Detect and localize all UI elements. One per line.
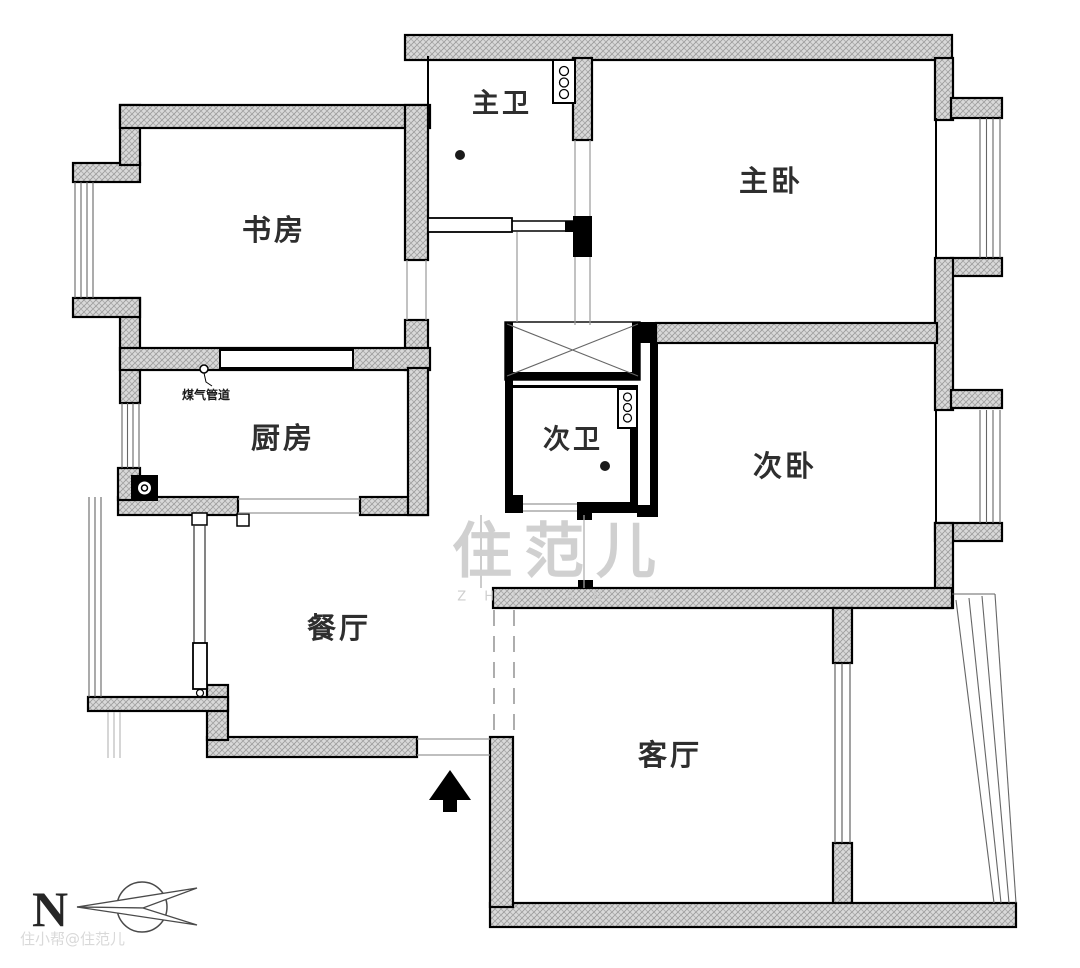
wall-secondbath-corner (505, 495, 523, 513)
wall-secondbed-left (650, 343, 658, 513)
kitchen-opening-frame (237, 514, 249, 526)
wall-kitchen-right (408, 368, 428, 515)
wall-center-upper (405, 105, 428, 260)
room-label-second-bedroom: 次卧 (753, 449, 817, 483)
shaft-bottom-border (505, 372, 640, 380)
room-label-living: 客厅 (638, 738, 702, 772)
sidebalcony-partition-frame (192, 513, 207, 525)
watermark-letters: Z H U F A N E R (457, 590, 662, 605)
wall-dining-bottom (207, 737, 417, 757)
floor-plan: 主卫 主卧 书房 厨房 次卫 次卧 餐厅 客厅 煤气管道 住范儿 Z H U F… (0, 0, 1080, 968)
wall-dining-corner (207, 685, 228, 740)
wall-secondbath-top (505, 385, 638, 388)
wall-bottom (490, 903, 1016, 927)
compass-north-label: N (32, 881, 68, 937)
radiator-master-bath (553, 60, 575, 103)
background (0, 0, 1080, 968)
door-study-kitchen-pass (220, 350, 353, 368)
floor-drain-second-bath (600, 461, 610, 471)
gas-pipe-label: 煤气管道 (182, 387, 230, 402)
watermark-center: 住范儿 (452, 517, 668, 587)
gas-meter-kitchen (131, 475, 158, 501)
floor-drain-master-bath (455, 150, 465, 160)
wall-secondbath-left (505, 380, 513, 513)
room-label-kitchen: 厨房 (251, 421, 315, 455)
wall-bay2-stub-top (951, 390, 1002, 408)
wall-sidebalcony-bottom (88, 697, 228, 711)
floor-plan-canvas: 主卫 主卧 书房 厨房 次卫 次卧 餐厅 客厅 煤气管道 住范儿 Z H U F… (0, 0, 1080, 968)
wall-living-left (490, 737, 513, 907)
wall-balcony-divider-top (833, 608, 852, 663)
door-masterbath (428, 218, 512, 232)
wall-secondbed-jog (637, 505, 658, 517)
wall-studybay-stub-bottom (73, 298, 140, 317)
door-sidebalcony (193, 643, 207, 689)
room-label-dining: 餐厅 (307, 611, 371, 645)
shaft-left-border (505, 322, 513, 380)
room-label-second-bath: 次卫 (543, 425, 603, 456)
room-label-master-bedroom: 主卧 (739, 164, 803, 198)
wall-top (405, 35, 952, 60)
wall-balcony-divider-bottom (833, 843, 852, 905)
wall-secondbed-top (656, 323, 937, 343)
wall-bay1-stub-top (951, 98, 1002, 118)
wall-masterbed-left-piece (573, 216, 592, 257)
room-label-master-bath: 主卫 (472, 89, 532, 120)
door-sidebalcony-hinge (197, 690, 204, 697)
wall-study-top (120, 105, 430, 128)
wall-bay1-stub-bottom (951, 258, 1002, 276)
room-label-study: 书房 (242, 213, 306, 247)
radiator-second-bath (618, 389, 637, 428)
